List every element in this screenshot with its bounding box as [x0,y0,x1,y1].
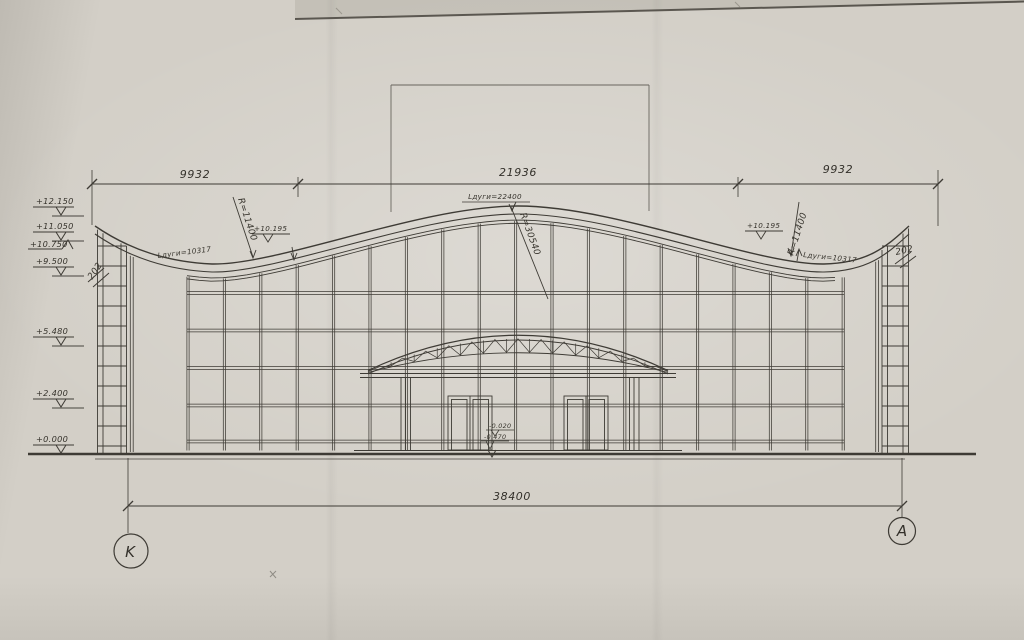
photographed-blueprint-sheet: 9932 21936 9932 [0,0,1024,640]
level-arrow-icon [486,441,494,449]
level-arrow-icon [56,337,66,345]
level-mark-label: +5.480 [36,326,68,336]
level-arrow-icon [56,207,66,215]
level-arrow-icon [56,445,66,453]
pencil-mark-icon [270,571,276,578]
level-mark-label: +9.500 [36,256,68,266]
roof-radius-center-label: R=30540 [517,212,542,257]
roof-curve-band [95,206,909,272]
level-mark-label: +10.750 [30,239,68,249]
dim-overall-label: 38400 [493,490,531,503]
level-mark-label: +2.400 [36,388,68,398]
roof-level-right-mark: +10.195 [745,221,783,239]
roof-level-right-label: +10.195 [747,221,780,230]
elevation-level-marks: +12.150 +11.050 +10.750 +9.500 +5.480 +2… [28,196,84,453]
level-arrow-icon [56,267,66,275]
edge-dimension-right: 202 [895,244,916,268]
level-mark-label: +0.000 [36,434,68,444]
ground-line [28,454,976,459]
level-arrow-icon [56,399,66,407]
bottom-dimension-line: 38400 [123,458,907,533]
roof-arc-center-label: Lдуги=22400 [468,192,522,201]
roof-radius-left-label: R=11400 [235,197,258,242]
axis-k-label: K [125,543,136,561]
axis-a-label: A [896,522,907,540]
edge-dimension-left: 202 [86,261,109,287]
axis-bubble-k: K [114,534,148,568]
level-arrow-icon [756,231,766,239]
dim-top-right-label: 9932 [823,163,853,176]
dim-top-center-label: 21936 [499,166,537,179]
level-mark-label: +12.150 [36,196,74,206]
entrance-level-upper-label: -0.020 [489,422,511,430]
roof-arc-left-label: Lдуги=10317 [157,244,212,260]
roof-annotations-center: Lдуги=22400 R=30540 [462,192,548,299]
roof-level-left-label: +10.195 [254,224,287,233]
entrance-level-lower-label: -0.470 [484,433,506,441]
roof-annotations-left: R=11400 Lдуги=10317 +10.195 [157,197,297,260]
level-mark-label: +11.050 [36,221,74,231]
axis-bubble-a: A [889,518,916,545]
level-arrow-icon [263,234,273,242]
roof-arc-right-label: Lдуги=10317 [803,250,858,265]
entrance-level-marks: -0.020 -0.470 [481,422,514,457]
facade-elevation-drawing: 9932 21936 9932 [0,0,1024,640]
dim-top-left-label: 9932 [180,168,210,181]
canopy-columns [401,378,639,450]
